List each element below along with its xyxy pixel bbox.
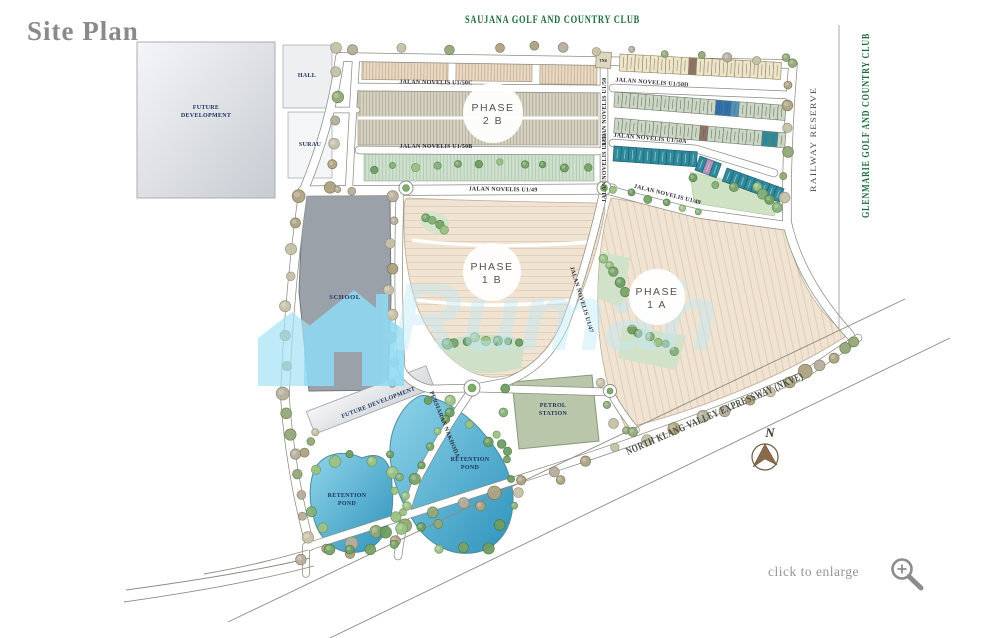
tree [644,195,652,203]
tree [281,408,292,419]
future-development-box [137,42,275,198]
phase-1b-word: PHASE [470,261,513,273]
tree [584,164,592,172]
tree [440,226,449,235]
tree [286,272,295,281]
tree [780,173,787,180]
tree [458,497,469,508]
tree [814,360,825,371]
street-label-u150c: JALAN NOVELIS U1/50C [399,79,472,86]
tree [497,159,503,165]
tree [592,47,600,55]
tree [331,116,340,125]
railway-reserve-label: RAILWAY RESERVE [808,87,818,192]
tree [285,244,296,255]
school-label: SCHOOL [329,294,360,301]
tree [427,507,438,518]
tree [503,456,510,463]
tree [434,162,441,169]
surau-label: SURAU [299,142,322,148]
tnb-label: TNB [599,59,607,63]
tree [530,41,539,50]
tree [371,166,378,173]
street-label-u150b: JALAN NOVELIS U1/50B [399,144,472,150]
tree [698,52,705,59]
tree [501,384,510,393]
phase-2b-number: 2 B [483,115,503,127]
future-dev-label-line2: DEVELOPMENT [181,113,231,119]
phase-1a-word: PHASE [635,286,678,298]
enlarge-control[interactable]: click to enlarge [768,560,921,589]
tree [292,469,302,479]
retention-right-line2: POND [461,465,480,471]
tree [609,186,616,193]
tree [507,475,514,482]
tree [458,543,468,553]
tree [285,429,296,440]
tree [611,443,619,451]
tree [494,520,505,531]
tree [348,187,356,195]
tree [389,162,395,168]
tree [428,216,436,224]
tree [779,192,790,203]
glenmarie-label: GLENMARIE GOLF AND COUNTRY CLUB [860,33,872,218]
tree [609,419,619,429]
petrol-label-line1: PETROL [540,403,566,409]
retention-left-line2: POND [338,501,357,507]
petrol-label-line2: STATION [539,411,568,417]
tree [331,42,342,53]
tree [380,526,392,538]
tree [365,544,376,555]
tree [331,67,341,77]
street-label-u149: JALAN NOVELIS U1/49 [469,186,538,193]
tree [783,146,794,157]
tree [712,182,719,189]
page-title: Site Plan [27,16,139,46]
tree [445,45,455,55]
tree [549,467,559,477]
tree [346,450,353,457]
tree [391,487,398,494]
hall-label: HALL [298,73,316,79]
tree [783,123,792,132]
tree [493,431,500,438]
tree [488,486,502,500]
tree [307,438,315,446]
tree [318,523,328,533]
tree [298,512,306,520]
tree [558,42,568,52]
tree [411,163,419,171]
magnifier-plus-icon [893,560,922,589]
tree [503,447,511,455]
enlarge-text: click to enlarge [768,564,859,579]
tree [347,45,357,55]
phase-2b-word: PHASE [471,102,514,114]
tree [300,448,309,457]
tree [397,43,406,52]
tree [329,456,341,468]
site-plan-figure[interactable]: Rumah PHASE 2 B PHASE 1 B PHASE 1 A FUTU… [0,0,1000,638]
phase-1a-number: 1 A [647,299,667,311]
future-dev-label-line1: FUTURE [193,105,219,111]
tree [466,421,474,429]
tree [306,507,316,517]
tree [311,465,320,474]
tree [483,543,494,554]
tree [475,160,483,168]
tree [513,488,523,498]
phase-1b-number: 1 B [482,274,502,286]
retention-left-line1: RETENTION [328,493,367,499]
street-label-u150-lower: JALAN NOVELIS U1/50 [602,134,608,203]
tree [399,509,406,516]
tree [297,490,306,499]
tree [324,182,336,194]
tree [434,519,443,528]
tree [497,440,506,449]
tree [495,43,504,52]
tree [849,337,859,347]
tree [753,56,761,64]
compass-north-label: N [764,425,775,440]
site-plan-svg: Rumah PHASE 2 B PHASE 1 B PHASE 1 A FUTU… [0,0,1000,638]
tree [385,239,395,249]
saujana-label: SAUJANA GOLF AND COUNTRY CLUB [465,12,640,26]
